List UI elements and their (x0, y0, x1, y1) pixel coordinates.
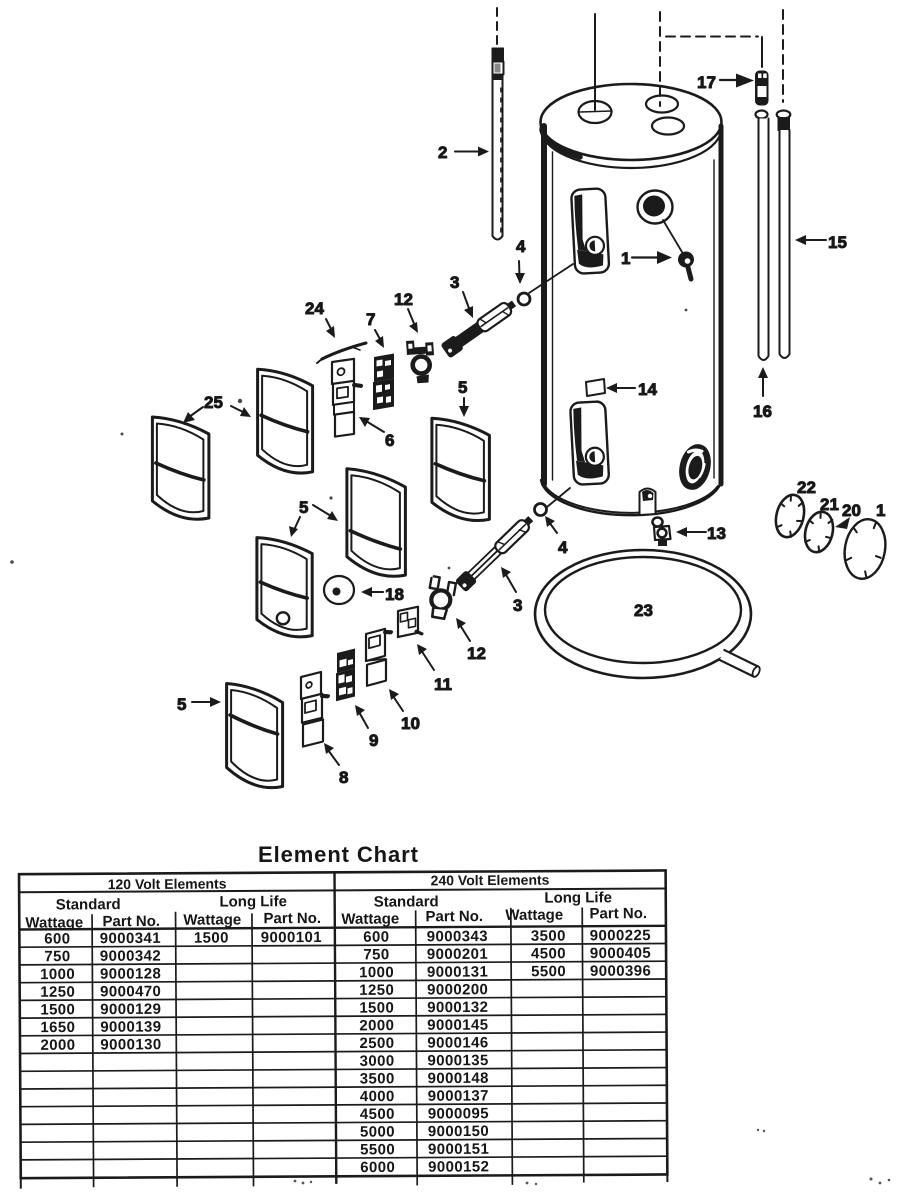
svg-text:5500: 5500 (531, 963, 566, 980)
svg-text:1650: 1650 (40, 1019, 75, 1036)
svg-text:1: 1 (621, 249, 630, 268)
svg-text:9000148: 9000148 (428, 1070, 489, 1087)
svg-text:15: 15 (828, 233, 847, 252)
svg-text:4: 4 (558, 538, 568, 557)
svg-text:9000128: 9000128 (100, 965, 161, 982)
svg-text:5: 5 (177, 695, 186, 714)
svg-text:Wattage: Wattage (341, 911, 399, 928)
svg-text:1000: 1000 (40, 966, 75, 983)
svg-text:13: 13 (707, 524, 726, 543)
svg-text:18: 18 (385, 585, 404, 604)
svg-text:9000152: 9000152 (428, 1158, 489, 1175)
svg-text:1500: 1500 (40, 1001, 75, 1018)
svg-text:9000342: 9000342 (100, 948, 161, 965)
svg-text:1500: 1500 (194, 929, 229, 946)
svg-text:750: 750 (44, 948, 70, 965)
svg-text:2: 2 (438, 143, 447, 162)
svg-text:9000146: 9000146 (427, 1034, 488, 1051)
svg-text:240 Volt Elements: 240 Volt Elements (431, 872, 550, 889)
svg-text:1250: 1250 (359, 982, 394, 999)
svg-text:Part No.: Part No. (263, 910, 321, 927)
svg-text:1: 1 (876, 501, 885, 520)
svg-text:9000225: 9000225 (590, 927, 651, 944)
svg-text:2500: 2500 (359, 1035, 394, 1052)
svg-text:8: 8 (339, 768, 348, 787)
svg-text:2000: 2000 (40, 1037, 75, 1054)
svg-text:11: 11 (434, 675, 452, 694)
svg-text:3: 3 (513, 596, 522, 615)
svg-text:5: 5 (458, 378, 467, 397)
svg-text:Part No.: Part No. (102, 913, 160, 930)
svg-text:Long Life: Long Life (219, 893, 287, 910)
svg-text:9000130: 9000130 (100, 1036, 161, 1053)
svg-text:3500: 3500 (360, 1070, 395, 1087)
svg-text:Part No.: Part No. (589, 905, 647, 922)
svg-text:750: 750 (363, 946, 389, 963)
svg-text:22: 22 (797, 478, 816, 497)
svg-text:9000405: 9000405 (590, 945, 651, 962)
svg-text:25: 25 (204, 393, 223, 412)
svg-text:7: 7 (366, 310, 375, 329)
svg-text:5500: 5500 (360, 1141, 395, 1158)
svg-text:9000201: 9000201 (427, 946, 488, 963)
svg-text:Wattage: Wattage (505, 907, 563, 924)
svg-text:1000: 1000 (359, 964, 394, 981)
svg-text:4: 4 (516, 237, 526, 256)
svg-text:4000: 4000 (360, 1088, 395, 1105)
svg-text:600: 600 (44, 930, 70, 947)
svg-text:Long Life: Long Life (544, 889, 612, 906)
svg-text:9000150: 9000150 (428, 1123, 489, 1140)
svg-text:9000341: 9000341 (100, 930, 161, 947)
svg-text:Element Chart: Element Chart (258, 842, 419, 867)
svg-text:5: 5 (299, 498, 308, 517)
svg-text:5000: 5000 (360, 1123, 395, 1140)
svg-text:Standard: Standard (56, 896, 121, 913)
svg-text:4500: 4500 (360, 1106, 395, 1123)
svg-text:Wattage: Wattage (25, 914, 83, 931)
svg-text:120 Volt Elements: 120 Volt Elements (108, 875, 227, 892)
svg-text:9000101: 9000101 (261, 929, 322, 946)
svg-text:3: 3 (450, 273, 459, 292)
svg-text:2000: 2000 (359, 1017, 394, 1034)
svg-text:9000151: 9000151 (428, 1141, 489, 1158)
svg-text:23: 23 (634, 601, 653, 620)
svg-text:20: 20 (842, 501, 861, 520)
svg-text:Wattage: Wattage (183, 911, 241, 928)
svg-text:1250: 1250 (40, 984, 75, 1001)
svg-text:9000131: 9000131 (427, 963, 488, 980)
svg-text:Part No.: Part No. (425, 908, 483, 925)
svg-text:9000095: 9000095 (428, 1105, 489, 1122)
svg-text:16: 16 (753, 402, 772, 421)
svg-text:4500: 4500 (531, 945, 566, 962)
svg-text:9000132: 9000132 (427, 999, 488, 1016)
svg-text:3000: 3000 (360, 1053, 395, 1070)
svg-text:17: 17 (697, 73, 716, 92)
svg-text:12: 12 (467, 644, 486, 663)
svg-text:21: 21 (820, 495, 839, 514)
svg-text:9000343: 9000343 (427, 928, 488, 945)
svg-text:9000145: 9000145 (427, 1017, 488, 1034)
svg-text:9000396: 9000396 (590, 963, 651, 980)
svg-text:9000135: 9000135 (427, 1052, 488, 1069)
svg-text:1500: 1500 (359, 999, 394, 1016)
svg-text:6: 6 (385, 431, 394, 450)
svg-text:12: 12 (394, 290, 413, 309)
svg-text:9000200: 9000200 (427, 981, 488, 998)
svg-text:600: 600 (363, 929, 389, 946)
svg-text:9000137: 9000137 (428, 1087, 489, 1104)
svg-text:9: 9 (369, 731, 378, 750)
svg-text:9000139: 9000139 (100, 1018, 161, 1035)
svg-text:6000: 6000 (360, 1159, 395, 1176)
svg-text:9000470: 9000470 (100, 983, 161, 1000)
svg-text:9000129: 9000129 (100, 1001, 161, 1018)
svg-text:3500: 3500 (531, 928, 566, 945)
svg-text:24: 24 (305, 299, 324, 318)
svg-text:14: 14 (638, 380, 657, 399)
svg-text:10: 10 (401, 714, 420, 733)
